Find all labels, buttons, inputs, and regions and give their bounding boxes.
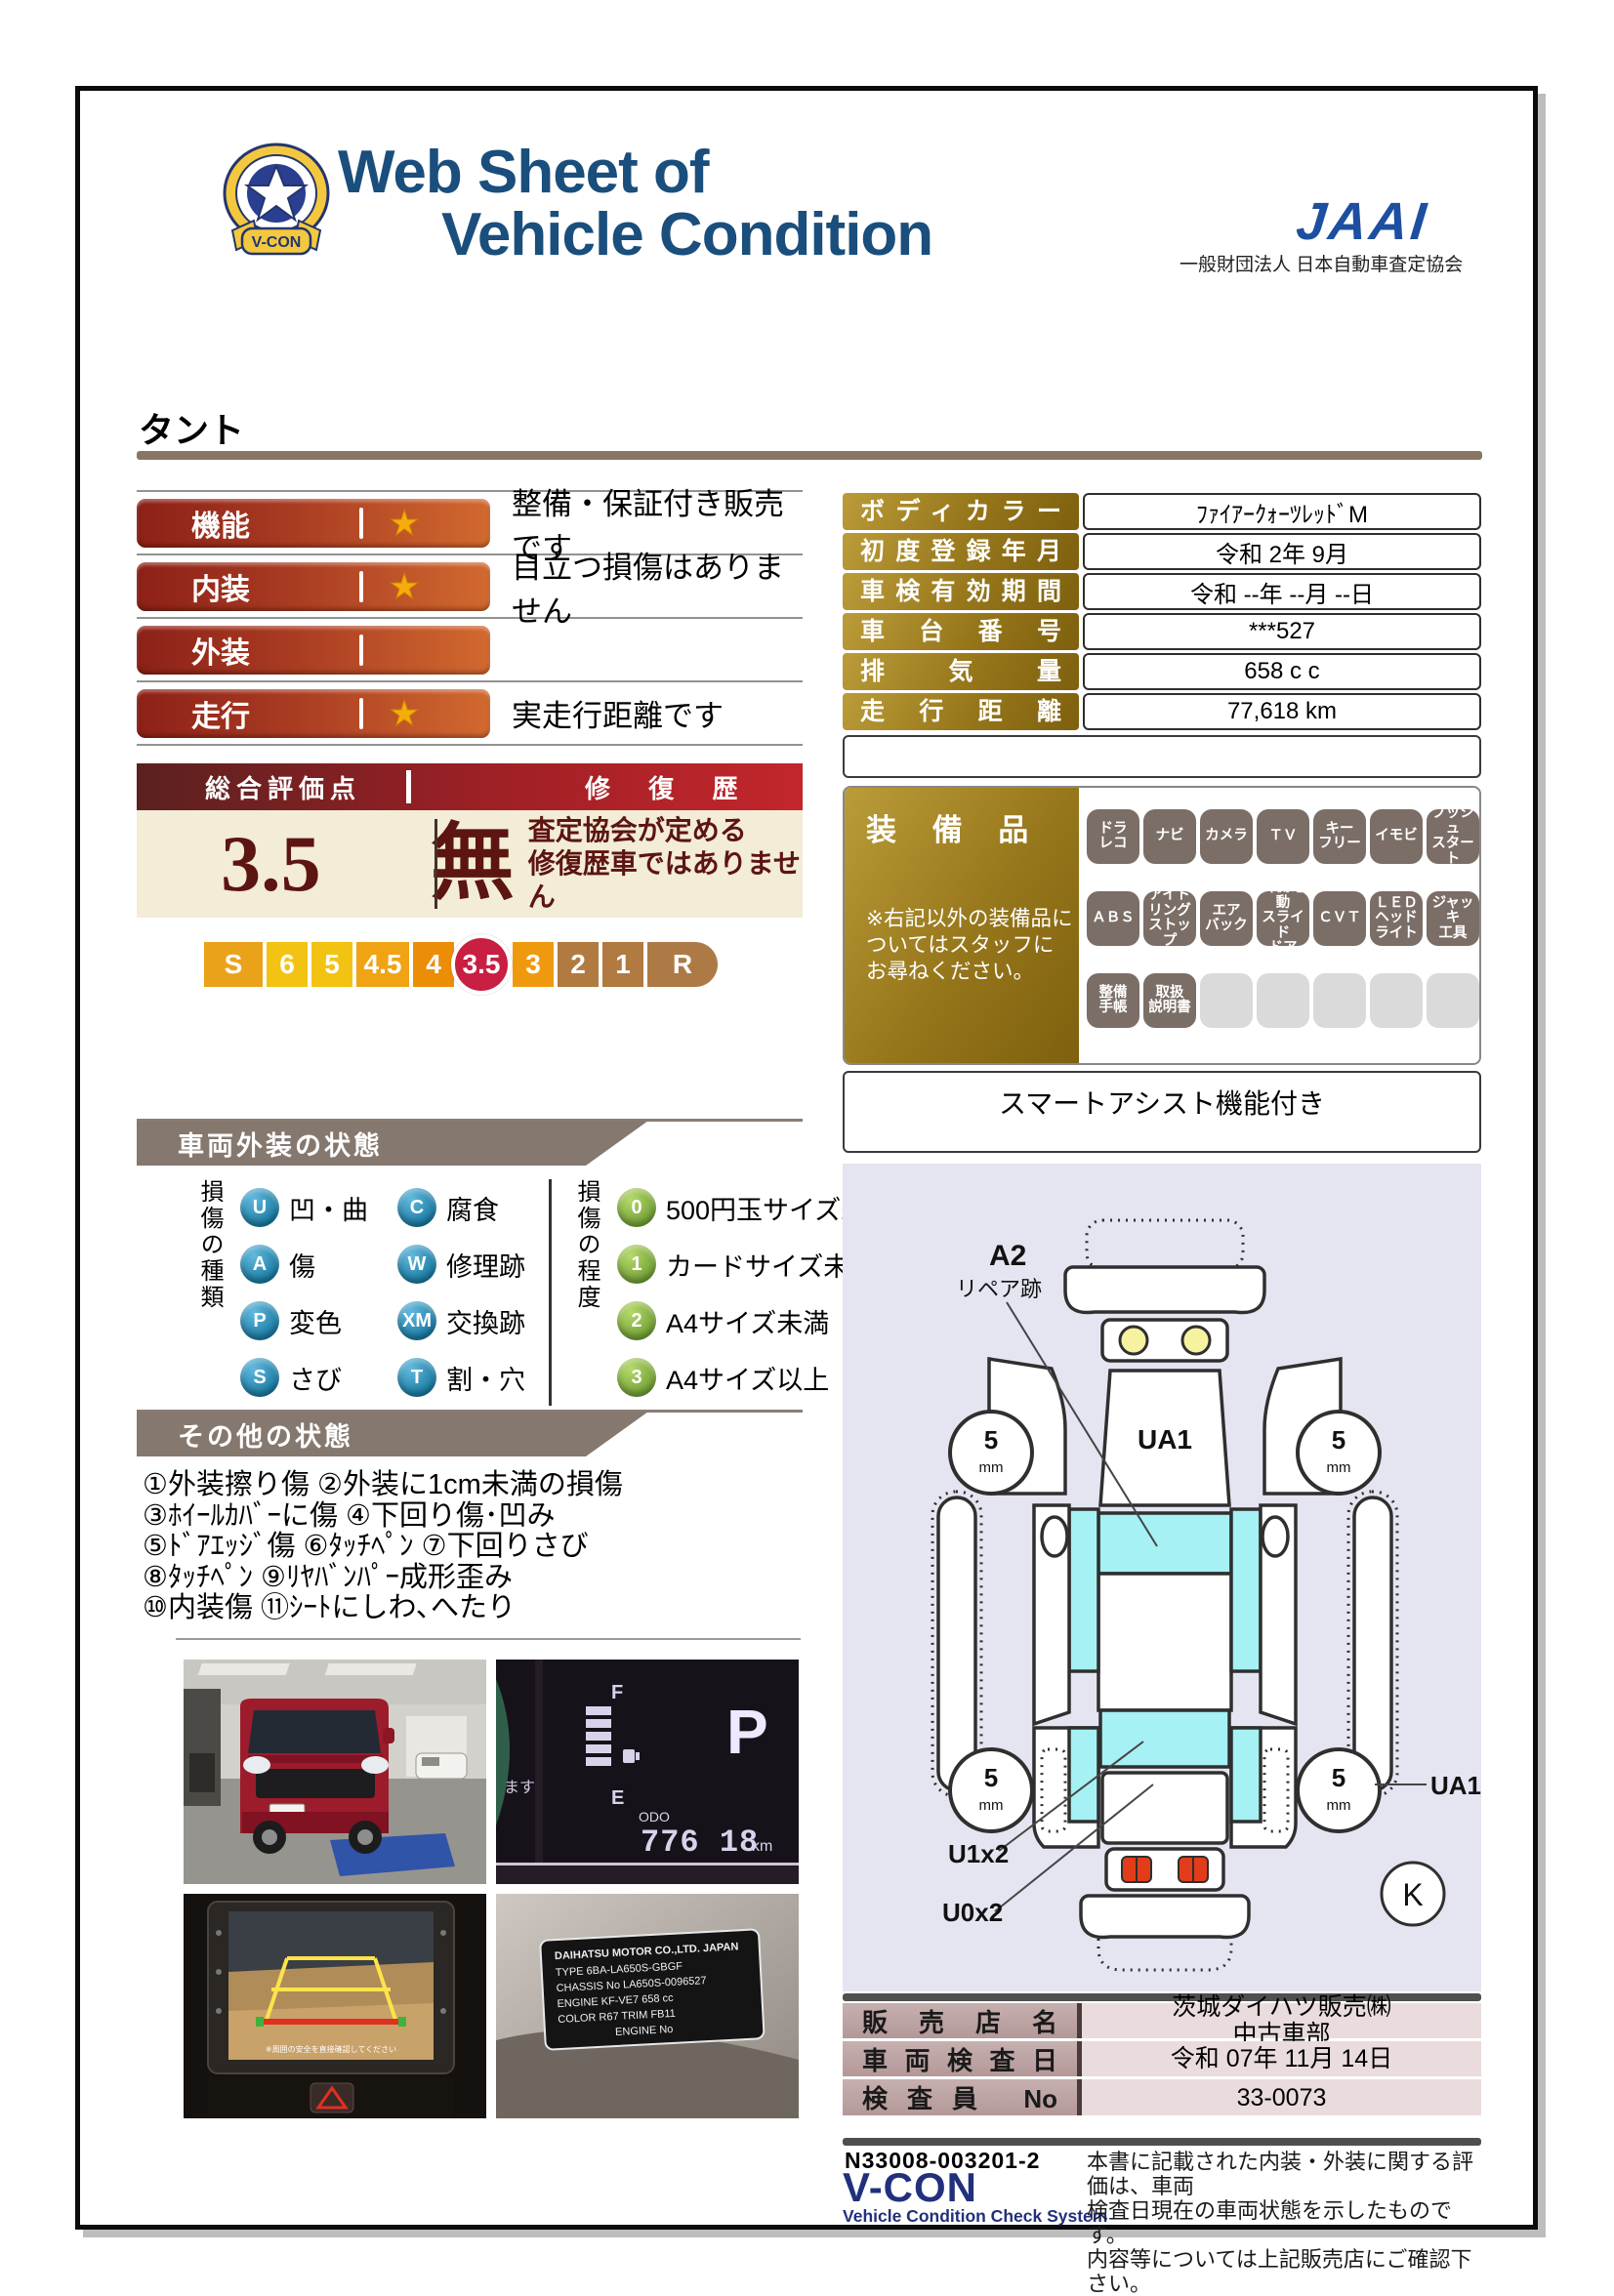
body-divider [435,819,437,909]
badge-divider [359,698,363,729]
equipment-badge [1200,973,1253,1028]
score-scale-pill: 3.5 [451,934,512,995]
vcon-logo: V-CON [843,2167,977,2208]
damage-degree-code: 0 [617,1188,656,1227]
vcon-badge-logo: V-CON [221,143,332,262]
display-message: ます [504,1779,535,1796]
footer-note: 本書に記載された内装・外装に関する評価は、車両 検査日現在の車両状態を示したもの… [1087,2150,1489,2296]
info-row: 車台番号 ***527 [843,613,1481,650]
info-value: ﾌｧｲｱｰｸｫｰﾂﾚｯﾄﾞM [1083,493,1481,530]
damage-kind-code: U [240,1188,279,1227]
repair-note-line2: 修復歴車ではありません [528,847,803,914]
door-window-right [1231,1509,1261,1671]
score-scale-pill: 3 [509,942,554,987]
equipment-badge: ＴＶ [1257,809,1309,864]
damage-mark-a2: A2 [989,1240,1026,1272]
damage-kind-text: 交換跡 [446,1302,525,1340]
score-scale-pill: 4 [409,942,454,987]
rating-description: 目立つ損傷はありません [512,543,803,631]
damage-kind-text: 修理跡 [446,1246,525,1284]
rating-label: 走行 [191,692,336,735]
equipment-panel: 装 備 品 ※右記以外の装備品に ついてはスタッフに お尋ねください。 ドラ レ… [843,786,1481,1065]
smart-assist-box: スマートアシスト機能付き [843,1071,1481,1153]
dealer-label: 検査員 No [843,2079,1077,2115]
info-label: 初度登録年月 [843,533,1079,570]
damage-kind-item: U 凹・曲 [240,1188,368,1227]
info-row: 車検有効期間 令和 --年 --月 --日 [843,573,1481,610]
info-value: 令和 --年 --月 --日 [1083,573,1481,610]
rating-label: 内装 [191,565,336,608]
score-scale: S654.543.5321R [200,935,718,994]
damage-kind-text: 傷 [289,1246,315,1284]
damage-kind-code: XM [397,1301,436,1340]
equipment-badge: アイド リング ストップ [1143,891,1196,946]
score-scale-pill: R [643,942,718,987]
photo-backup-camera: ※周囲の安全を直接確認してください [184,1894,486,2118]
dealer-value: 令和 07年 11月 14日 [1077,2041,1481,2076]
score-scale-pill: 5 [308,942,352,987]
dealer-row: 検査員 No 33-0073 [843,2079,1481,2115]
info-row: ボディカラー ﾌｧｲｱｰｸｫｰﾂﾚｯﾄﾞM [843,493,1481,530]
damage-kind-text: 腐食 [446,1189,499,1227]
damage-legend: 損傷の種類 U 凹・曲 A 傷 P 変色 S さび C 腐食 W 修理跡 XM [192,1179,893,1406]
wheel-depth-value: 5 [984,1763,998,1792]
wheel-depth-value: 5 [984,1425,998,1455]
damage-kind-item: C 腐食 [397,1188,525,1227]
equipment-badge: ドラ レコ [1087,809,1139,864]
info-value: 658 c c [1083,653,1481,690]
rating-badge: 内装 ★ [137,562,490,611]
page-title-line2: Vehicle Condition [441,205,932,266]
equipment-badge: ＬＥＤ ヘッド ライト [1370,891,1423,946]
damage-degree-text: A4サイズ未満 [666,1302,829,1340]
repair-history-note: 査定協会が定める 修復歴車ではありません [528,814,803,914]
section-tab-other: その他の状態 [137,1412,648,1456]
rating-badge: 外装 ★ [137,626,490,675]
wheel-depth-unit: mm [979,1459,1004,1476]
star-icon: ★ [389,696,420,731]
damage-kind-code: S [240,1358,279,1397]
damage-degree-label: 損傷の程度 [569,1179,603,1406]
info-row: 初度登録年月 令和 2年 9月 [843,533,1481,570]
overall-header: 総合評価点 修 復 歴 [137,763,803,810]
table-bottom-bar [843,2138,1481,2146]
dealer-value: 33-0073 [1077,2079,1481,2115]
rear-bumper [1081,1896,1249,1938]
equipment-badge: 片側電動 スライド ドア [1257,891,1309,946]
jaai-org-name: 一般財団法人 日本自動車査定協会 [1179,250,1463,276]
damage-kind-item: S さび [240,1358,368,1397]
other-condition-notes: ①外装擦り傷 ②外装に1cm未満の損傷③ﾎｲｰﾙｶﾊﾞｰに傷 ④下回り傷･凹み⑤… [143,1470,623,1624]
wheel-depth-value: 5 [1332,1763,1345,1792]
damage-kind-code: C [397,1188,436,1227]
info-label: 排気量 [843,653,1079,690]
damage-kind-item: XM 交換跡 [397,1301,525,1340]
equipment-badge: エア バック [1200,891,1253,946]
damage-kind-text: 凹・曲 [289,1189,368,1227]
equipment-badge: 取扱 説明書 [1143,973,1196,1028]
roof [1098,1574,1231,1710]
wheel-depth-value: 5 [1332,1425,1345,1455]
equipment-badge [1257,973,1309,1028]
rating-label: 外装 [191,629,336,672]
other-condition-line: ⑩内装傷 ⑪ｼｰﾄにしわ､へたり [143,1593,623,1624]
tailgate [1102,1773,1227,1843]
equipment-badge [1313,973,1366,1028]
info-value: 令和 2年 9月 [1083,533,1481,570]
empty-info-box [843,735,1481,778]
vcon-ribbon-label: V-CON [252,234,302,251]
dealer-row: 販売店名 茨城ダイハツ販売㈱ 中古車部 [843,2003,1481,2038]
mirror-left [1042,1517,1067,1556]
score-scale-pill: S [200,942,263,987]
wheel-depth-unit: mm [1327,1797,1351,1814]
photo-odometer: F E ODO 776 18 km P ます [496,1660,799,1884]
damage-mark-u0: U0x2 [942,1898,1003,1927]
equipment-badge: カメラ [1200,809,1253,864]
equipment-title: 装 備 品 [866,805,1079,849]
equipment-badge: プッシュ スタート [1427,809,1479,864]
damage-kind-text: さび [289,1359,342,1397]
odometer-value: 776 18 [641,1824,759,1861]
photo-data-plate: DAIHATSU MOTOR CO.,LTD. JAPAN TYPE 6BA-L… [496,1894,799,2118]
info-value: 77,618 km [1083,693,1481,730]
fuel-full-label: F [611,1682,623,1703]
headlight-right [1182,1327,1210,1354]
section-tab-exterior: 車両外装の状態 [137,1121,648,1166]
equipment-badge [1427,973,1479,1028]
sill-right [1354,1497,1391,1790]
repair-history-value: 無 [431,824,515,904]
vehicle-info-table: ボディカラー ﾌｧｲｱｰｸｫｰﾂﾚｯﾄﾞM 初度登録年月 令和 2年 9月 車検… [843,493,1481,730]
equipment-badge: ＡＢＳ [1087,891,1139,946]
damage-kind-code: A [240,1245,279,1284]
divider-rule [137,451,1482,460]
photo-vehicle-front [184,1660,486,1884]
sill-left [938,1497,975,1790]
damage-mark-side: UA1 [1430,1771,1481,1800]
jaai-logo: JAAI [1294,191,1432,252]
badge-divider [359,508,363,539]
rating-list: 機能 ★ 整備・保証付き販売です 内装 ★ 目立つ損傷はありません 外装 ★ 走… [137,490,803,746]
overall-body: 3.5 無 査定協会が定める 修復歴車ではありません [137,810,803,918]
front-bumper [1065,1267,1264,1313]
star-icon: ★ [389,569,420,604]
other-condition-line: ⑧ﾀｯﾁﾍﾟﾝ ⑨ﾘﾔﾊﾞﾝﾊﾟｰ成形歪み [143,1563,623,1594]
wheel-depth-unit: mm [1327,1459,1351,1476]
camera-caption: ※周囲の安全を直接確認してください [266,2044,396,2054]
damage-degree-code: 1 [617,1245,656,1284]
rear-window-right [1231,1728,1261,1822]
repair-history-title: 修 復 歴 [585,769,753,805]
badge-divider [359,571,363,602]
damage-kind-list: U 凹・曲 A 傷 P 変色 S さび C 腐食 W 修理跡 XM 交換跡 T [240,1179,525,1406]
vehicle-damage-diagram: A2 リペア跡 UA1 UA1 U1x2 U0x2 K 5 mm 5 mm 5 … [843,1164,1481,1991]
rating-badge: 機能 ★ [137,499,490,548]
equipment-badge: イモビ [1370,809,1423,864]
equipment-badge: ナビ [1143,809,1196,864]
damage-kind-code: T [397,1358,436,1397]
overall-score-panel: 総合評価点 修 復 歴 3.5 無 査定協会が定める 修復歴車ではありません [137,763,803,918]
other-condition-line: ⑤ﾄﾞｱｴｯｼﾞ傷 ⑥ﾀｯﾁﾍﾟﾝ ⑦下回りさび [143,1532,623,1563]
front-bumper-outline [1087,1220,1243,1269]
dealer-label: 販売店名 [843,2003,1077,2038]
equipment-header: 装 備 品 ※右記以外の装備品に ついてはスタッフに お尋ねください。 [845,788,1079,1063]
damage-kind-label: 損傷の種類 [192,1179,227,1406]
score-scale-pill: 2 [554,942,599,987]
equipment-badge: 整備 手帳 [1087,973,1139,1028]
divider-line [176,1638,801,1640]
damage-kind-item: T 割・穴 [397,1358,525,1397]
info-label: 車台番号 [843,613,1079,650]
mirror-right [1262,1517,1288,1556]
star-icon: ★ [389,506,420,541]
repair-note-line1: 査定協会が定める [528,814,803,847]
damage-kind-code: W [397,1245,436,1284]
vehicle-name: タント [139,402,244,453]
odo-label: ODO [639,1809,670,1824]
equipment-badge: ＣＶＴ [1313,891,1366,946]
info-value: ***527 [1083,613,1481,650]
equipment-note: ※右記以外の装備品に ついてはスタッフに お尋ねください。 [866,906,1079,985]
damage-mark-windshield: UA1 [1138,1424,1192,1455]
door-window-left [1069,1509,1098,1671]
overall-title: 総合評価点 [205,769,361,805]
damage-kind-text: 割・穴 [446,1359,525,1397]
rating-row: 走行 ★ 実走行距離です [137,682,803,746]
equipment-badge-grid: ドラ レコナビカメラＴＶキー フリーイモビプッシュ スタートＡＢＳアイド リング… [1079,788,1481,1063]
damage-kind-text: 変色 [289,1302,342,1340]
info-row: 排気量 658 c c [843,653,1481,690]
equipment-badge: ジャッキ 工具 [1427,891,1479,946]
badge-divider [359,635,363,666]
score-scale-pill: 1 [599,942,643,987]
odometer-unit: km [752,1838,772,1855]
info-label: 車検有効期間 [843,573,1079,610]
damage-kind-code: P [240,1301,279,1340]
score-scale-pill: 4.5 [352,942,409,987]
gear-indicator: P [726,1697,768,1767]
score-scale-pill: 6 [263,942,308,987]
wheel-depth-unit: mm [979,1797,1004,1814]
corner-mark: K [1402,1877,1423,1912]
equipment-badge: キー フリー [1313,809,1366,864]
rating-row: 内装 ★ 目立つ損傷はありません [137,555,803,619]
damage-mark-u1: U1x2 [948,1839,1009,1868]
headlight-left [1120,1327,1147,1354]
rear-bumper-outline [1098,1939,1231,1970]
fuel-empty-label: E [611,1787,624,1809]
legend-divider [549,1179,552,1406]
damage-kind-item: W 修理跡 [397,1245,525,1284]
damage-kind-item: A 傷 [240,1245,368,1284]
dealer-value: 茨城ダイハツ販売㈱ 中古車部 [1077,2003,1481,2038]
rear-window-left [1069,1728,1098,1822]
dealer-row: 車両検査日 令和 07年 11月 14日 [843,2041,1481,2076]
info-row: 走行距離 77,618 km [843,693,1481,730]
dealer-table: 販売店名 茨城ダイハツ販売㈱ 中古車部 車両検査日 令和 07年 11月 14日… [843,2003,1481,2115]
dealer-label: 車両検査日 [843,2041,1077,2076]
rating-badge: 走行 ★ [137,689,490,738]
rating-label: 機能 [191,502,336,545]
other-condition-line: ③ﾎｲｰﾙｶﾊﾞｰに傷 ④下回り傷･凹み [143,1501,623,1533]
damage-degree-text: A4サイズ以上 [666,1359,829,1397]
equipment-badge [1370,973,1423,1028]
overall-score-value: 3.5 [137,818,405,910]
vcon-subtitle: Vehicle Condition Check System [843,2206,1107,2227]
damage-mark-a2-note: リペア跡 [956,1277,1042,1301]
damage-degree-code: 3 [617,1358,656,1397]
roof-front-repair-area [1098,1513,1231,1574]
page-title-line1: Web Sheet of [338,143,709,203]
rating-description: 実走行距離です [512,691,724,735]
damage-kind-item: P 変色 [240,1301,368,1340]
other-condition-line: ①外装擦り傷 ②外装に1cm未満の損傷 [143,1470,623,1501]
info-label: 走行距離 [843,693,1079,730]
header-divider [406,770,411,803]
info-label: ボディカラー [843,493,1079,530]
damage-degree-code: 2 [617,1301,656,1340]
